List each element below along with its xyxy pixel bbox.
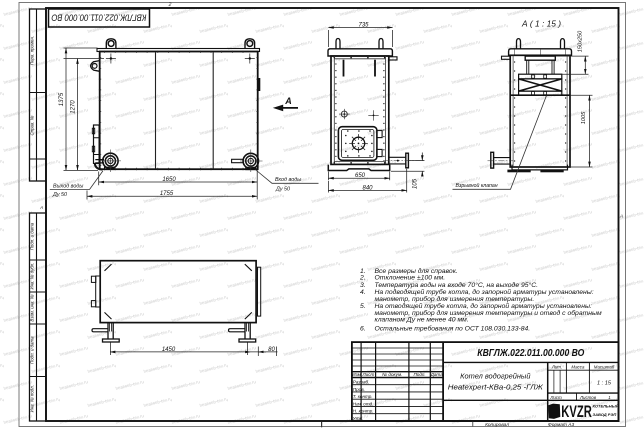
svg-text:1005: 1005 [581,111,587,124]
svg-text:4.: 4. [360,289,366,296]
svg-text:Дата: Дата [430,372,444,377]
svg-text:105: 105 [413,178,419,189]
svg-text:Масштаб: Масштаб [594,364,615,369]
svg-text:Все размеры для справок.: Все размеры для справок. [375,267,458,275]
svg-text:Лист: Лист [549,395,562,400]
svg-text:КВГЛЖ.022.011.00.000 ВО: КВГЛЖ.022.011.00.000 ВО [477,348,584,359]
svg-text:6.: 6. [360,325,366,332]
svg-text:Выход воды: Выход воды [53,183,83,189]
svg-text:КВГЛЖ.022.011.00.000 ВО: КВГЛЖ.022.011.00.000 ВО [51,13,147,24]
svg-text:Лист: Лист [361,372,374,377]
svg-text:клапаном Ду не менее 40 мм.: клапаном Ду не менее 40 мм. [375,317,469,324]
svg-text:Перв. примен.: Перв. примен. [30,36,35,65]
svg-text:1755: 1755 [160,191,174,197]
svg-text:На подводящей трубе котла, до: На подводящей трубе котла, до запорной а… [375,288,594,296]
svg-text:Лит.: Лит. [551,364,562,369]
svg-text:Вход воды: Вход воды [275,177,301,183]
svg-text:Подп. и дата: Подп. и дата [30,222,35,250]
svg-text:1450: 1450 [162,347,176,353]
svg-text:840: 840 [362,185,373,191]
svg-text:Инв. № дубл.: Инв. № дубл. [30,262,35,289]
svg-text:ЗАВОД РЭП: ЗАВОД РЭП [593,412,617,417]
svg-text:Отклонение ±100 мм.: Отклонение ±100 мм. [375,275,446,282]
svg-text:735: 735 [358,22,369,28]
svg-text:Т. контр.: Т. контр. [353,394,373,399]
svg-text:Ду 50: Ду 50 [275,187,290,193]
svg-text:1375: 1375 [59,92,65,106]
svg-text:Масса: Масса [571,364,585,369]
svg-text:Копировал: Копировал [485,422,509,428]
svg-text:650: 650 [355,173,366,179]
svg-text:Остальные требования по ОСТ 10: Остальные требования по ОСТ 108.030.133-… [375,324,531,332]
svg-text:№ докум.: № докум. [382,372,402,377]
svg-text:5.: 5. [360,303,366,310]
svg-text:Пров.: Пров. [353,387,365,392]
svg-text:Температура воды на входе 70°С: Температура воды на входе 70°С, на выход… [375,281,539,289]
svg-text:Heatexpert-КВа-0,25 -ГЛЖ: Heatexpert-КВа-0,25 -ГЛЖ [448,382,544,391]
svg-text:Листов: Листов [579,395,597,400]
svg-text:Взрывной клапан: Взрывной клапан [456,182,498,189]
svg-text:Нач. отд.: Нач. отд. [353,401,374,406]
svg-text:1270: 1270 [70,100,76,114]
svg-text:Инв. № подл.: Инв. № подл. [30,385,35,412]
svg-text:манометр, прибор для измерения: манометр, прибор для измерения температу… [375,309,603,317]
svg-text:Утв.: Утв. [353,416,363,421]
svg-text:3.: 3. [360,282,366,289]
svg-text:2.: 2. [359,275,366,282]
svg-text:манометр, прибор для измерения: манометр, прибор для измерения температу… [375,295,535,303]
svg-text:КОТЕЛЬНЫЙ: КОТЕЛЬНЫЙ [593,404,619,409]
svg-text:Подп.: Подп. [413,372,425,377]
svg-text:2: 2 [168,2,172,8]
svg-text:Н. контр.: Н. контр. [353,409,374,414]
svg-text:А: А [619,214,623,219]
svg-text:Котел водогрейный: Котел водогрейный [460,372,530,381]
svg-text:Ду 50: Ду 50 [52,192,67,198]
svg-text:А: А [284,96,292,106]
svg-text:KVZR: KVZR [561,402,592,421]
svg-text:1 : 15: 1 : 15 [597,381,612,387]
svg-text:А: А [39,205,43,210]
svg-text:Справ. №: Справ. № [30,115,35,135]
svg-text:150х250: 150х250 [577,30,583,52]
svg-text:1650: 1650 [162,177,176,183]
svg-text:Взам. инв. №: Взам. инв. № [30,294,35,321]
svg-text:Разраб.: Разраб. [353,380,370,385]
svg-text:Подп. и дата: Подп. и дата [30,336,35,364]
svg-text:80: 80 [268,347,275,353]
svg-text:На отводящей трубе котла, до з: На отводящей трубе котла, до запорной ар… [375,302,592,310]
svg-text:Формат А3: Формат А3 [548,422,575,428]
svg-text:Изм: Изм [352,372,361,377]
svg-text:А ( 1 : 15 ): А ( 1 : 15 ) [521,19,561,29]
